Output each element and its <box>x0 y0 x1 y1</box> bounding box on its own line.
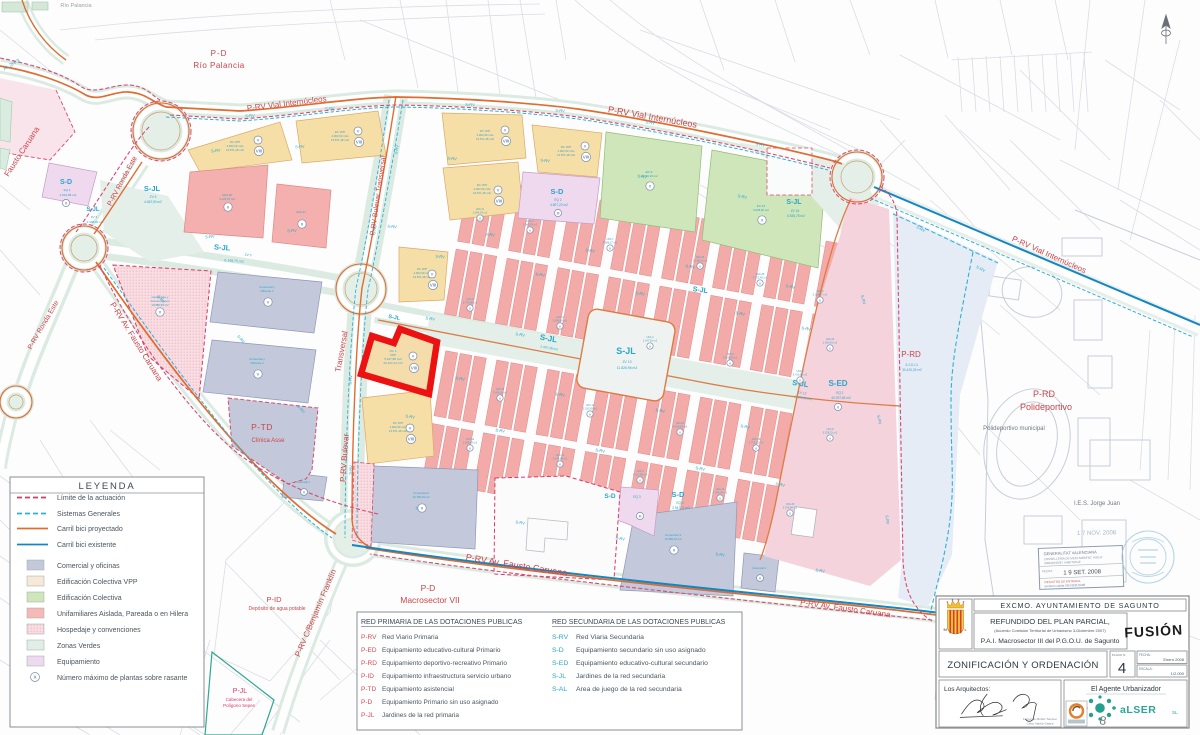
svg-text:P-JL: P-JL <box>233 688 248 695</box>
svg-text:EQ 3: EQ 3 <box>676 501 683 505</box>
svg-text:II: II <box>609 246 611 250</box>
svg-text:UFA 4: UFA 4 <box>526 219 534 223</box>
svg-text:P-RD: P-RD <box>901 350 921 359</box>
svg-text:S-RV: S-RV <box>555 108 565 114</box>
svg-text:P-ID: P-ID <box>267 595 283 604</box>
svg-text:Río Palancia: Río Palancia <box>193 61 244 70</box>
svg-text:X: X <box>649 183 652 188</box>
svg-text:S-RV: S-RV <box>387 224 397 230</box>
svg-text:V: V <box>412 354 415 358</box>
svg-text:II: II <box>759 281 761 285</box>
svg-text:II: II <box>559 462 561 466</box>
svg-text:EXCMO. AYUNTAMIENTO DE SAGU: EXCMO. AYUNTAMIENTO DE SAGUNTO <box>1000 601 1159 610</box>
svg-text:Unifamiliares Aislada, Pareada: Unifamiliares Aislada, Pareada o en Hile… <box>57 611 188 618</box>
svg-text:Jardines de la red primaria: Jardines de la red primaria <box>382 712 459 719</box>
svg-text:S-D: S-D <box>672 490 686 499</box>
svg-text:II: II <box>719 496 721 500</box>
svg-text:V: V <box>431 272 434 276</box>
svg-text:4.807,22 m2: 4.807,22 m2 <box>550 203 568 207</box>
svg-text:ZV 6: ZV 6 <box>150 195 157 199</box>
svg-text:V: V <box>257 138 260 142</box>
svg-text:2.498,80 m2: 2.498,80 m2 <box>87 220 104 224</box>
svg-text:Cabecera del: Cabecera del <box>226 697 253 702</box>
svg-text:Comercial y oficinas: Comercial y oficinas <box>57 563 120 570</box>
svg-text:EQ 2: EQ 2 <box>554 198 561 202</box>
svg-text:2.745,90 m2: 2.745,90 m2 <box>463 300 478 304</box>
svg-text:II: II <box>837 405 839 409</box>
svg-text:Comercial 4: Comercial 4 <box>752 566 766 570</box>
svg-text:1.695,83 m2: 1.695,83 m2 <box>463 440 478 444</box>
svg-text:Sistemas Generales: Sistemas Generales <box>57 511 121 518</box>
svg-text:Polígono Sepes: Polígono Sepes <box>223 703 256 708</box>
svg-text:VIII: VIII <box>583 154 590 159</box>
svg-text:VIII: VIII <box>411 365 418 370</box>
svg-text:Polideportivo: Polideportivo <box>1020 402 1072 412</box>
svg-text:II: II <box>673 547 675 552</box>
svg-text:S-D: S-D <box>551 187 565 196</box>
svg-text:V: V <box>504 128 507 132</box>
svg-text:LEYENDA: LEYENDA <box>79 481 136 492</box>
svg-text:P-TD: P-TD <box>361 686 376 693</box>
svg-text:S-JL: S-JL <box>552 673 566 680</box>
svg-text:Los Arquitectos:: Los Arquitectos: <box>944 686 990 693</box>
svg-text:S-D: S-D <box>604 493 616 500</box>
svg-text:S-RV: S-RV <box>485 232 495 238</box>
svg-text:II: II <box>227 204 229 209</box>
svg-text:ZONIFICACIÓN Y ORDENACIÓN: ZONIFICACIÓN Y ORDENACIÓN <box>947 660 1098 671</box>
svg-text:S-RV: S-RV <box>287 228 297 234</box>
svg-text:Carril bici proyectado: Carril bici proyectado <box>57 526 123 533</box>
svg-text:30.426,35 m2: 30.426,35 m2 <box>902 368 922 372</box>
svg-text:Area de juego de la red secund: Area de juego de la red secundaria <box>576 686 682 693</box>
svg-text:Enero 2008: Enero 2008 <box>1163 657 1184 662</box>
svg-text:P-ID: P-ID <box>361 673 374 680</box>
svg-text:aLSER: aLSER <box>1120 704 1156 716</box>
svg-text:UFA 33: UFA 33 <box>696 255 705 259</box>
svg-text:II: II <box>479 216 481 220</box>
svg-text:2.947,11 m2: 2.947,11 m2 <box>672 506 690 510</box>
svg-text:S-RV: S-RV <box>348 465 354 475</box>
svg-text:16.871,48 m2t: 16.871,48 m2t <box>331 138 349 142</box>
svg-text:II: II <box>421 505 423 510</box>
svg-text:5.415,81 m2: 5.415,81 m2 <box>793 372 808 376</box>
svg-text:S-RV: S-RV <box>295 144 305 150</box>
svg-text:P-JL: P-JL <box>361 712 375 719</box>
svg-text:S-JL: S-JL <box>786 199 802 206</box>
svg-text:M: M <box>944 627 947 632</box>
svg-text:II: II <box>301 221 303 226</box>
svg-text:II: II <box>589 412 591 416</box>
svg-text:3.576,84 m2: 3.576,84 m2 <box>783 505 798 509</box>
svg-text:Equipamiento educativo-cultura: Equipamiento educativo-cultural Primario <box>382 647 501 654</box>
svg-text:S-JL: S-JL <box>86 207 99 213</box>
svg-text:III: III <box>639 514 642 518</box>
svg-text:5.161,89 m2: 5.161,89 m2 <box>633 472 648 476</box>
svg-text:II: II <box>755 446 757 450</box>
svg-text:UFA 12: UFA 12 <box>586 403 595 407</box>
svg-text:VIII: VIII <box>256 148 263 153</box>
svg-text:UFA 14: UFA 14 <box>716 487 725 491</box>
svg-text:S-RV: S-RV <box>540 158 550 164</box>
svg-text:1 7 NOV. 2008: 1 7 NOV. 2008 <box>1077 530 1117 537</box>
svg-text:S-RV: S-RV <box>205 234 215 240</box>
svg-text:RED SECUNDARIA DE LAS DOTACION: RED SECUNDARIA DE LAS DOTACIONES PUBLICA… <box>552 619 726 626</box>
svg-text:Comercial 1: Comercial 1 <box>296 480 310 484</box>
svg-text:S-RV: S-RV <box>348 375 354 385</box>
svg-text:X: X <box>34 674 37 679</box>
svg-text:2.138,21 m2: 2.138,21 m2 <box>693 258 708 262</box>
svg-text:Zonas Verdes: Zonas Verdes <box>57 643 101 650</box>
svg-text:Fernando Muñoz Samper: Fernando Muñoz Samper <box>1023 717 1057 721</box>
svg-text:V: V <box>409 426 412 430</box>
svg-text:II: II <box>829 346 831 350</box>
svg-text:UFA 22: UFA 22 <box>826 337 835 341</box>
svg-text:16.871,48 m2t: 16.871,48 m2t <box>389 429 407 433</box>
svg-text:UFA 8: UFA 8 <box>466 297 474 301</box>
svg-text:20.324,13 m2t: 20.324,13 m2t <box>383 361 402 365</box>
svg-text:II: II <box>649 344 651 348</box>
svg-text:2.183,83 m2: 2.183,83 m2 <box>583 406 598 410</box>
svg-text:16.871,48 m2t: 16.871,48 m2t <box>226 148 244 152</box>
svg-text:Equipamiento asistencial: Equipamiento asistencial <box>382 686 454 693</box>
svg-text:VIII: VIII <box>356 139 363 144</box>
svg-text:II: II <box>759 576 761 580</box>
svg-text:Celso Varela Gadea: Celso Varela Gadea <box>1027 722 1054 726</box>
svg-text:II: II <box>559 324 561 328</box>
svg-text:Carril bici existente: Carril bici existente <box>57 542 116 549</box>
svg-text:SL.: SL. <box>1172 710 1179 715</box>
svg-text:V: V <box>357 129 360 133</box>
svg-text:3.723,19 m2: 3.723,19 m2 <box>749 440 764 444</box>
svg-text:RED PRIMARIA DE LAS DOTACIONES: RED PRIMARIA DE LAS DOTACIONES PUBLICAS <box>361 619 523 626</box>
svg-text:Hospedaje y convenciones: Hospedaje y convenciones <box>57 627 141 634</box>
svg-text:P-ED: P-ED <box>361 647 377 654</box>
svg-text:UFA 20: UFA 20 <box>676 421 685 425</box>
svg-text:P-D: P-D <box>361 699 373 706</box>
svg-text:II: II <box>65 201 67 205</box>
svg-text:UFA 28: UFA 28 <box>756 272 765 276</box>
svg-text:S-JL: S-JL <box>144 184 161 193</box>
svg-text:1/2.000: 1/2.000 <box>1171 671 1185 676</box>
svg-text:S-RV: S-RV <box>465 102 475 107</box>
svg-text:EQ 3: EQ 3 <box>633 495 640 499</box>
svg-text:Clínica Asse: Clínica Asse <box>251 438 285 444</box>
svg-text:EQ 4: EQ 4 <box>64 188 71 192</box>
svg-text:4: 4 <box>1118 660 1126 677</box>
svg-text:Red Viaria Secundaria: Red Viaria Secundaria <box>576 634 644 641</box>
svg-text:S-RV: S-RV <box>447 156 457 162</box>
svg-text:S-RV: S-RV <box>245 113 255 119</box>
svg-text:3.406,41 m2: 3.406,41 m2 <box>493 390 508 394</box>
svg-text:10.880,65 m2: 10.880,65 m2 <box>151 303 169 307</box>
svg-text:VIII: VIII <box>503 138 510 143</box>
svg-text:Equipamiento infraestructura s: Equipamiento infraestructura servicio ur… <box>382 673 511 680</box>
svg-text:V: V <box>584 144 587 148</box>
svg-text:S-RV: S-RV <box>552 634 569 641</box>
svg-text:P-RD: P-RD <box>1033 389 1055 399</box>
svg-text:S-JL: S-JL <box>214 242 231 252</box>
svg-text:FECHA:: FECHA: <box>1139 653 1151 657</box>
svg-text:Edificación Colectiva: Edificación Colectiva <box>57 595 122 602</box>
svg-text:6.536,78 m2: 6.536,78 m2 <box>787 214 805 218</box>
svg-text:II: II <box>639 478 641 482</box>
svg-text:UFA 8: UFA 8 <box>826 427 834 431</box>
svg-text:Polideportivo municipal: Polideportivo municipal <box>983 426 1045 432</box>
svg-text:11.826,96 m2: 11.826,96 m2 <box>617 366 638 370</box>
svg-text:II: II <box>469 446 471 450</box>
svg-text:2.147,81 m2: 2.147,81 m2 <box>643 338 658 342</box>
svg-text:Equipamiento Primario sin uso: Equipamiento Primario sin uso asignado <box>382 699 499 706</box>
svg-text:UFA 27: UFA 27 <box>296 210 306 214</box>
svg-text:S-ED: S-ED <box>828 379 847 388</box>
svg-text:II: II <box>729 361 731 365</box>
svg-text:UFA 30: UFA 30 <box>496 387 505 391</box>
svg-text:V: V <box>267 299 270 304</box>
svg-text:UFA 29: UFA 29 <box>752 437 761 441</box>
svg-text:ZV 5: ZV 5 <box>245 253 252 257</box>
svg-text:II: II <box>499 396 501 400</box>
svg-text:S-JL: S-JL <box>616 346 636 356</box>
svg-text:16.871,48 m2t: 16.871,48 m2t <box>557 153 575 157</box>
svg-text:V: V <box>497 188 500 192</box>
svg-text:13.746,20 m2: 13.746,20 m2 <box>640 174 658 178</box>
svg-text:1.940,78 m2: 1.940,78 m2 <box>523 222 538 226</box>
svg-text:S-RV: S-RV <box>435 254 445 260</box>
svg-text:III: III <box>557 211 560 215</box>
svg-text:ZV 16: ZV 16 <box>791 209 800 213</box>
svg-text:UFA 4: UFA 4 <box>646 335 654 339</box>
svg-text:13.689,26 m2: 13.689,26 m2 <box>664 537 682 541</box>
svg-text:El Agente Urbanizador: El Agente Urbanizador <box>1091 686 1162 693</box>
svg-text:UFA 6: UFA 6 <box>816 289 824 293</box>
svg-text:4.123,07 m2: 4.123,07 m2 <box>219 197 235 201</box>
svg-text:X: X <box>159 309 162 314</box>
svg-text:42.097,65 m2: 42.097,65 m2 <box>831 396 851 400</box>
svg-text:UFA 13: UFA 13 <box>556 453 565 457</box>
svg-text:V: V <box>257 371 260 376</box>
svg-text:UFA 21: UFA 21 <box>476 207 485 211</box>
svg-text:PLANO N:: PLANO N: <box>1112 653 1126 657</box>
svg-text:2.991,88 m2: 2.991,88 m2 <box>60 193 77 197</box>
svg-text:II: II <box>469 306 471 310</box>
svg-text:P.A.I. Macrosector III del P.G: P.A.I. Macrosector III del P.G.O.U. de S… <box>981 638 1120 645</box>
svg-text:Red Viario Primaria: Red Viario Primaria <box>382 634 439 641</box>
svg-text:Equipamiento deportivo-recreat: Equipamiento deportivo-recreativo Primar… <box>382 660 507 667</box>
svg-text:VIII: VIII <box>496 198 503 203</box>
svg-text:II: II <box>819 298 821 302</box>
svg-text:Número máximo de plantas sobre: Número máximo de plantas sobre rasante <box>57 675 187 682</box>
svg-text:S-ED: S-ED <box>552 660 568 667</box>
svg-text:ZV 3: ZV 3 <box>91 215 98 219</box>
svg-text:P-D: P-D <box>211 49 228 58</box>
svg-text:16.871,48 m2t: 16.871,48 m2t <box>476 137 494 141</box>
svg-text:5.2-D-CL: 5.2-D-CL <box>906 363 919 367</box>
svg-text:S-D: S-D <box>552 647 564 654</box>
svg-text:Equipamiento secundario sin us: Equipamiento secundario sin uso asignado <box>576 647 706 654</box>
svg-text:13.155,49 m2: 13.155,49 m2 <box>412 495 430 499</box>
svg-text:II: II <box>799 378 801 382</box>
svg-text:P-D: P-D <box>421 583 436 593</box>
svg-text:5.528,31 m2: 5.528,31 m2 <box>823 430 838 434</box>
svg-text:ESCALA:: ESCALA: <box>1139 667 1153 671</box>
svg-text:II: II <box>829 436 831 440</box>
svg-text:X: X <box>761 217 764 222</box>
svg-text:3.199,80 m2: 3.199,80 m2 <box>553 456 568 460</box>
svg-text:4.796,78 m2: 4.796,78 m2 <box>713 490 728 494</box>
svg-text:UFA 8: UFA 8 <box>796 369 804 373</box>
svg-text:Equipamiento educativo-cultura: Equipamiento educativo-cultural secundar… <box>576 660 708 667</box>
svg-text:P-RV: P-RV <box>361 634 377 641</box>
svg-text:4.452,50 m2: 4.452,50 m2 <box>144 200 162 204</box>
svg-text:5.699,60 m2: 5.699,60 m2 <box>553 318 568 322</box>
svg-text:P-RD: P-RD <box>361 660 377 667</box>
svg-text:P-TD: P-TD <box>251 422 273 432</box>
svg-text:Oficinas 2: Oficinas 2 <box>250 361 264 365</box>
svg-text:UFA 9: UFA 9 <box>726 352 734 356</box>
svg-text:3.696,17 m2: 3.696,17 m2 <box>603 240 618 244</box>
svg-text:3.529,28 m2: 3.529,28 m2 <box>723 355 738 359</box>
svg-text:Oficinas 1: Oficinas 1 <box>260 289 274 293</box>
svg-text:5.606,53 m2: 5.606,53 m2 <box>673 424 688 428</box>
svg-text:Jardines de la red secundaria: Jardines de la red secundaria <box>576 673 665 680</box>
svg-text:FECHA: FECHA <box>1042 569 1052 573</box>
svg-text:S-RV: S-RV <box>325 106 335 112</box>
svg-text:I.E.S. Jorge Juan: I.E.S. Jorge Juan <box>1074 501 1120 507</box>
svg-text:16.871,48 m2t: 16.871,48 m2t <box>473 191 491 195</box>
svg-text:UFA 4: UFA 4 <box>556 315 564 319</box>
svg-text:II: II <box>789 511 791 515</box>
svg-text:II: II <box>303 490 305 494</box>
svg-text:UFA 12: UFA 12 <box>466 437 475 441</box>
svg-text:FUSIÓN: FUSIÓN <box>1124 620 1184 640</box>
svg-text:Límite de la actuación: Límite de la actuación <box>57 495 125 502</box>
svg-text:Macrosector VII: Macrosector VII <box>400 595 460 605</box>
svg-text:II: II <box>699 264 701 268</box>
svg-text:VIII: VIII <box>430 282 437 287</box>
svg-text:2.600,63 m2: 2.600,63 m2 <box>823 340 838 344</box>
svg-text:(Acuerdo Comisión Territorial: (Acuerdo Comisión Territorial de Urbanis… <box>994 628 1106 633</box>
svg-text:9.028,60 m2: 9.028,60 m2 <box>753 208 769 212</box>
svg-text:Depósito de agua potable: Depósito de agua potable <box>249 606 306 612</box>
svg-text:EQ 1: EQ 1 <box>836 391 843 395</box>
svg-text:II: II <box>679 430 681 434</box>
svg-text:REFUNDIDO DEL PLAN PARCIAL,: REFUNDIDO DEL PLAN PARCIAL, <box>990 617 1110 626</box>
svg-text:ZV 13: ZV 13 <box>622 360 631 364</box>
svg-text:VIII: VIII <box>408 436 415 441</box>
svg-text:Equipamiento: Equipamiento <box>57 659 100 666</box>
svg-text:5.534,17 m2: 5.534,17 m2 <box>813 292 828 296</box>
svg-text:UFA 28: UFA 28 <box>786 502 795 506</box>
svg-text:2.504,93 m2: 2.504,93 m2 <box>473 210 488 214</box>
svg-text:UFA 5: UFA 5 <box>636 469 644 473</box>
svg-text:S-AL: S-AL <box>552 686 567 693</box>
svg-text:S-D: S-D <box>60 179 72 186</box>
svg-text:4.171,40 m2: 4.171,40 m2 <box>753 275 768 279</box>
svg-text:UFA 7: UFA 7 <box>606 237 614 241</box>
svg-text:Río Palancia: Río Palancia <box>60 3 92 9</box>
svg-text:II: II <box>529 228 531 232</box>
svg-text:Edificación Colectiva VPP: Edificación Colectiva VPP <box>57 579 138 586</box>
